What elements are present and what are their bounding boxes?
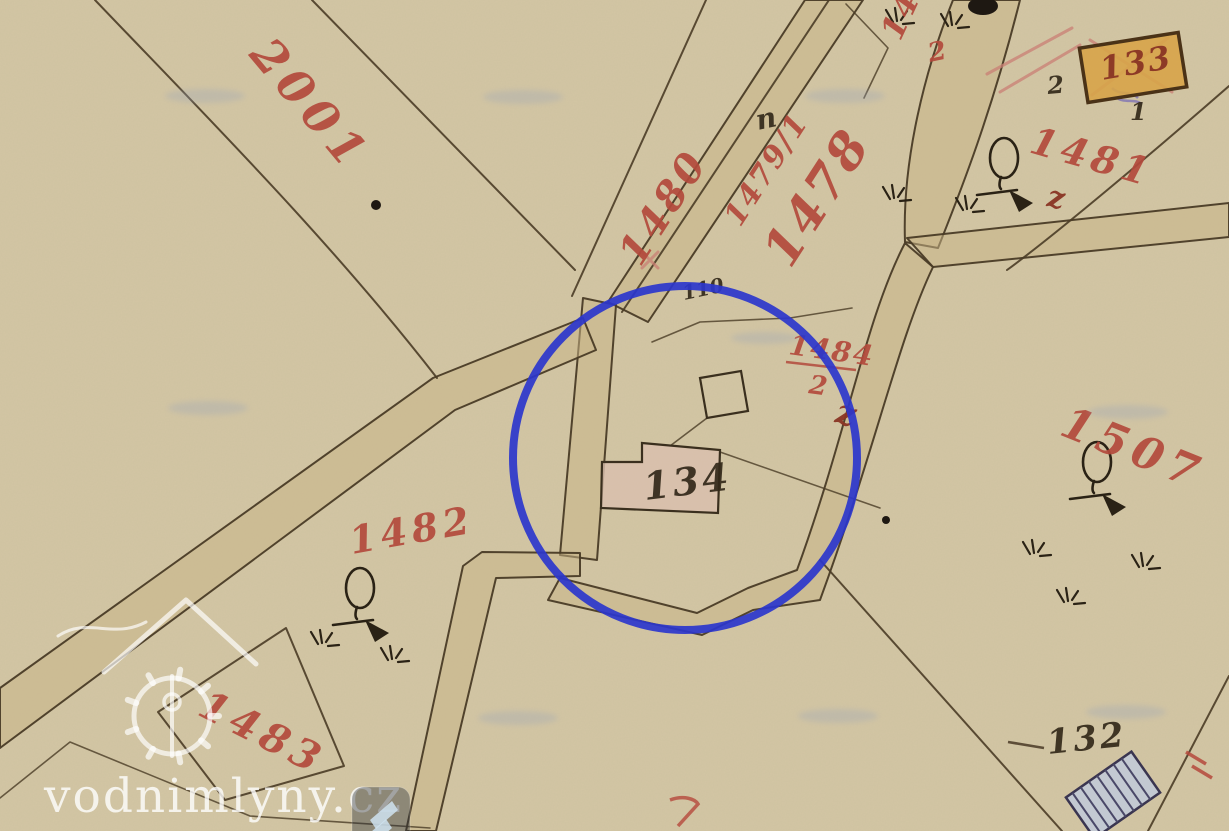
boundary-dot [882,516,890,524]
boundary-dot [371,200,381,210]
number-2: 2 [1045,70,1065,100]
cadastral-map-svg: 2001 1480 1479/1 1478 1479 2 1481 z 1484… [0,0,1229,831]
number-132: 132 [1045,715,1129,763]
number-1: 1 [1130,97,1147,126]
watermark-site-text: vodnimlyny.cz [43,769,403,824]
badge-logo [352,787,410,831]
map-canvas[interactable]: 2001 1480 1479/1 1478 1479 2 1481 z 1484… [0,0,1229,831]
